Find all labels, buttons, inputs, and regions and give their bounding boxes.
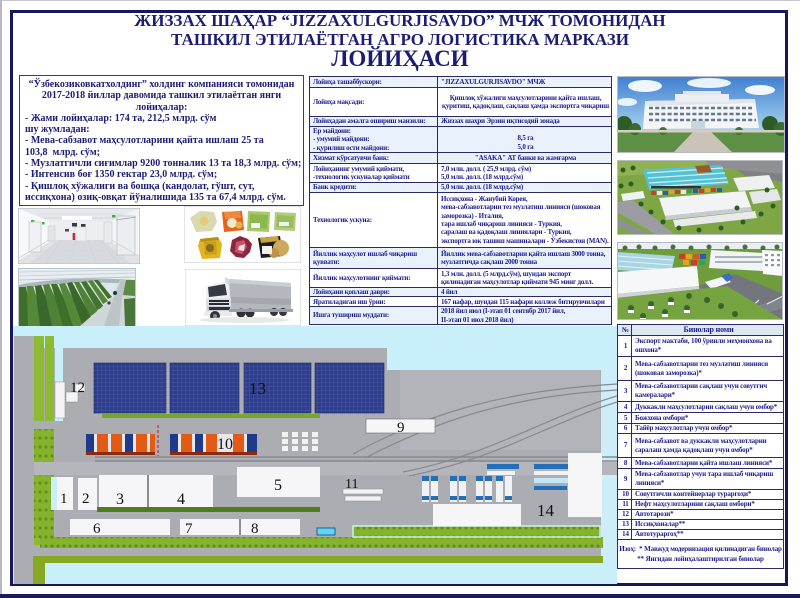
svg-text:1: 1 — [60, 491, 68, 507]
svg-text:3: 3 — [116, 491, 124, 508]
svg-text:12: 12 — [70, 380, 85, 396]
svg-text:5: 5 — [274, 477, 282, 494]
svg-text:7: 7 — [185, 521, 193, 537]
svg-text:14: 14 — [537, 501, 555, 520]
svg-text:6: 6 — [93, 521, 101, 537]
svg-text:2: 2 — [82, 491, 90, 507]
svg-text:8: 8 — [251, 521, 259, 537]
svg-text:13: 13 — [249, 379, 266, 398]
svg-text:4: 4 — [177, 491, 185, 508]
svg-text:9: 9 — [397, 420, 405, 436]
svg-text:10: 10 — [217, 436, 233, 453]
